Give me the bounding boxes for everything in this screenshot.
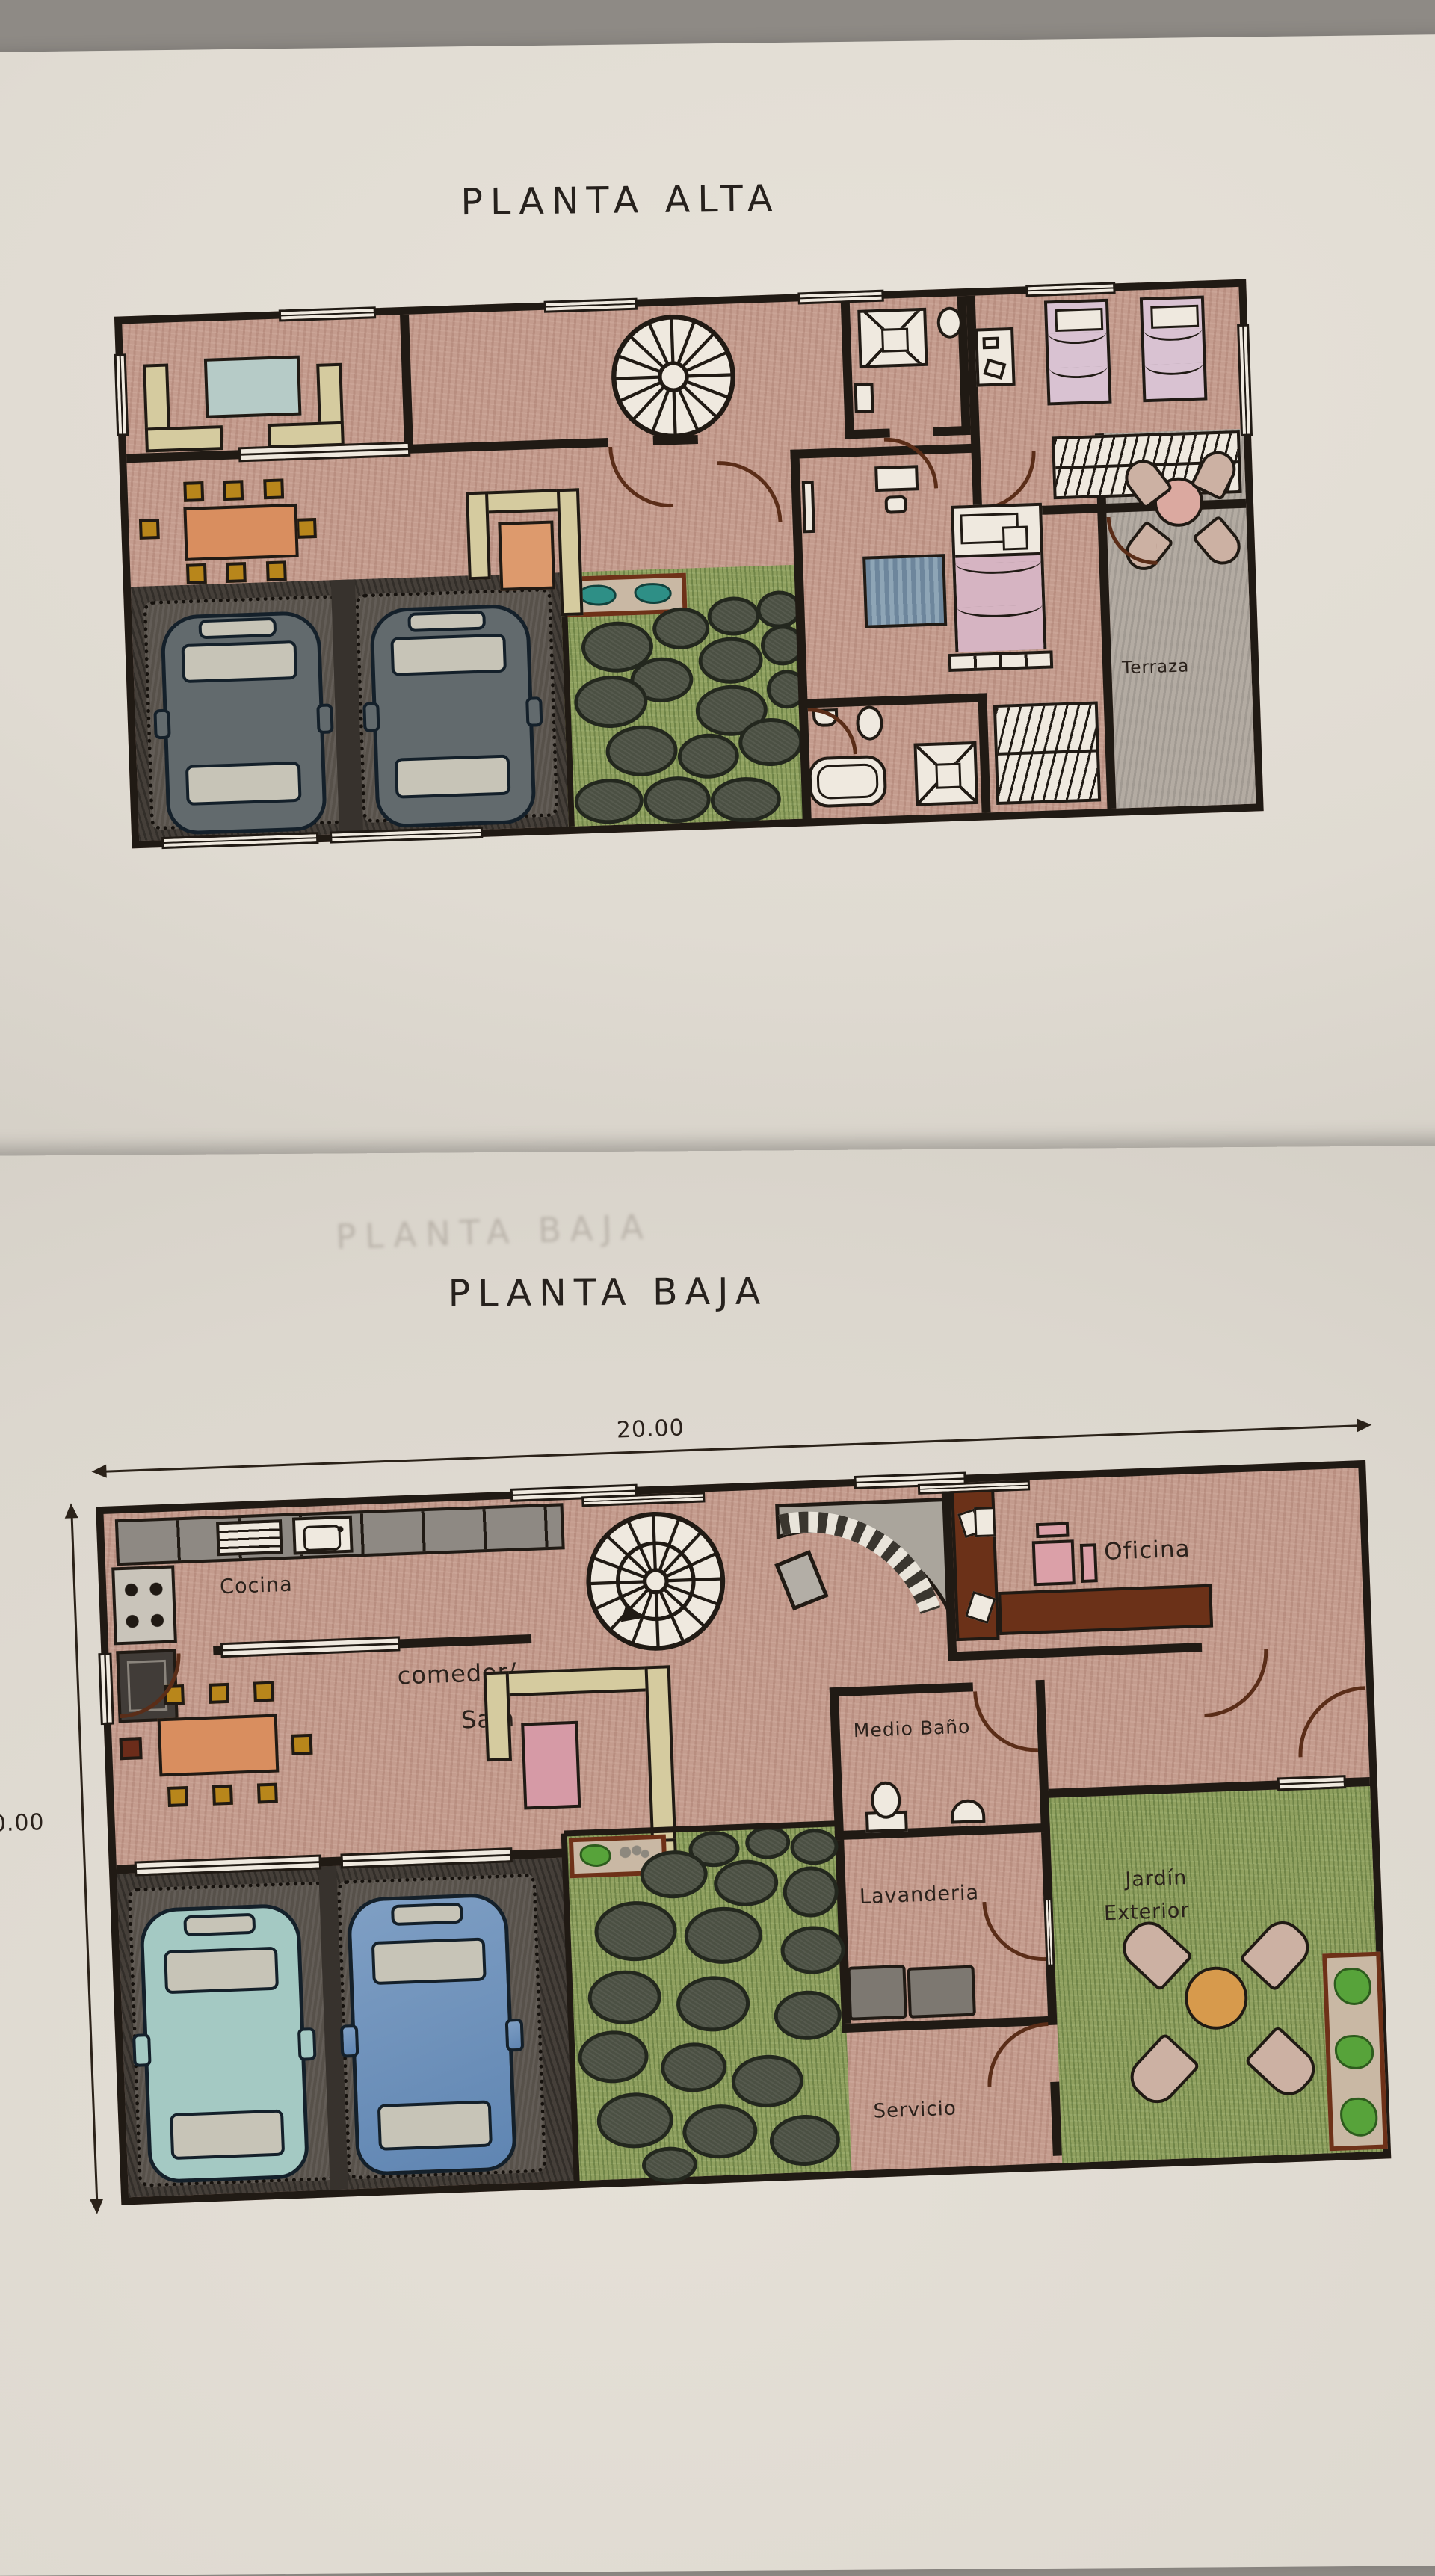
washer	[847, 1965, 907, 2021]
dining-chair	[291, 1734, 313, 1755]
planter-box	[1322, 1952, 1388, 2152]
door-arc	[1296, 1686, 1367, 1757]
sink	[950, 1799, 985, 1824]
office-chair	[1036, 1522, 1070, 1539]
door-arc	[608, 445, 673, 510]
bathtub	[808, 755, 887, 808]
spiral-staircase	[582, 1507, 729, 1655]
double-bed	[951, 503, 1046, 652]
window	[797, 290, 883, 305]
car-top-view	[160, 611, 327, 835]
desk-item	[982, 337, 999, 350]
window	[1025, 282, 1115, 297]
sheet-planta-alta: PLANTA ALTA	[0, 34, 1435, 1177]
entry-door	[98, 1653, 114, 1726]
dining-chair	[120, 1737, 143, 1760]
dryer	[907, 1965, 976, 2019]
office-table	[1032, 1539, 1076, 1586]
servicio-label: Servicio	[873, 2098, 957, 2123]
dining-chair	[139, 519, 160, 540]
sofa-section	[145, 425, 223, 452]
sheet-planta-baja: PLANTA BAJA PLANTA BAJA 20.00 10.00	[0, 1146, 1435, 2576]
car-top-view-teal	[139, 1903, 309, 2184]
window	[114, 353, 129, 436]
oficina-label: Oficina	[1104, 1536, 1191, 1566]
dining-table	[158, 1714, 280, 1777]
spiral-staircase	[608, 311, 739, 442]
door-arc	[985, 2022, 1050, 2087]
dining-chair	[223, 480, 244, 501]
dimension-width: 20.00	[104, 1468, 1359, 1514]
height-dimension-label: 10.00	[0, 1809, 45, 1838]
sofa-section	[484, 1671, 512, 1761]
door-arc	[1202, 1649, 1270, 1717]
dining-chair	[212, 1785, 233, 1806]
dining-chair	[209, 1683, 229, 1704]
jardin-label-line1: Jardín	[1125, 1866, 1188, 1891]
sofa-section	[557, 488, 584, 616]
single-bed	[1044, 299, 1112, 406]
floor-plan-alta: Terraza	[114, 279, 1264, 849]
medio-bano-label: Medio Baño	[853, 1716, 971, 1742]
planta-alta-title: PLANTA ALTA	[460, 177, 780, 223]
window	[220, 1636, 401, 1658]
floor-plan-baja: 20.00 10.00	[96, 1460, 1391, 2205]
terraza-label: Terraza	[1122, 656, 1190, 678]
toilet	[856, 705, 884, 741]
window	[1237, 324, 1253, 436]
window	[544, 298, 638, 313]
door-arc	[978, 451, 1038, 511]
cocina-label: Cocina	[220, 1573, 293, 1599]
sofa-section	[466, 491, 491, 580]
planta-baja-title: PLANTA BAJA	[448, 1270, 768, 1315]
area-rug	[204, 356, 302, 418]
ghost-title: PLANTA BAJA	[335, 1207, 652, 1257]
car-top-view	[369, 604, 537, 829]
desk	[874, 465, 919, 492]
curved-staircase	[765, 1492, 956, 1624]
width-dimension-label: 20.00	[616, 1415, 685, 1443]
dining-chair	[186, 563, 207, 584]
door-arc	[717, 459, 783, 524]
shelf	[802, 481, 815, 533]
cooktop	[111, 1565, 177, 1645]
door-arc	[808, 706, 857, 756]
office-desk	[951, 1486, 1000, 1641]
dining-table	[183, 504, 298, 561]
shower	[857, 308, 928, 368]
dining-chair	[183, 481, 204, 502]
photo-of-hand-drawn-floor-plans: PLANTA ALTA	[0, 0, 1435, 2551]
closet-hangers	[993, 701, 1101, 805]
window	[1277, 1775, 1347, 1791]
single-bed	[1140, 295, 1208, 402]
sofa-section	[316, 363, 344, 427]
dining-chair	[266, 560, 287, 581]
dining-chair	[253, 1681, 274, 1702]
window	[279, 306, 376, 321]
door-arc	[973, 1689, 1038, 1754]
dining-chair	[263, 478, 284, 499]
window	[238, 442, 411, 463]
area-rug	[862, 554, 947, 628]
dining-chair	[167, 1786, 188, 1807]
dining-chair	[257, 1783, 278, 1804]
area-rug	[521, 1721, 581, 1810]
chair	[884, 495, 907, 514]
lavanderia-label: Lavanderia	[859, 1881, 979, 1909]
office-chair	[1080, 1543, 1098, 1583]
dining-chair	[296, 518, 317, 539]
bed-bench	[948, 650, 1054, 672]
area-rug	[498, 520, 555, 590]
stepping-stone	[641, 2146, 698, 2184]
kitchen-sink	[292, 1516, 354, 1555]
office-desk	[998, 1584, 1213, 1635]
stove-grill	[216, 1519, 283, 1556]
car-top-view-blue	[347, 1892, 517, 2176]
dining-chair	[226, 562, 247, 583]
dimension-height: 10.00	[104, 1468, 1359, 1514]
shower	[913, 741, 978, 806]
door-arc	[982, 1900, 1046, 1963]
sink	[854, 383, 874, 413]
